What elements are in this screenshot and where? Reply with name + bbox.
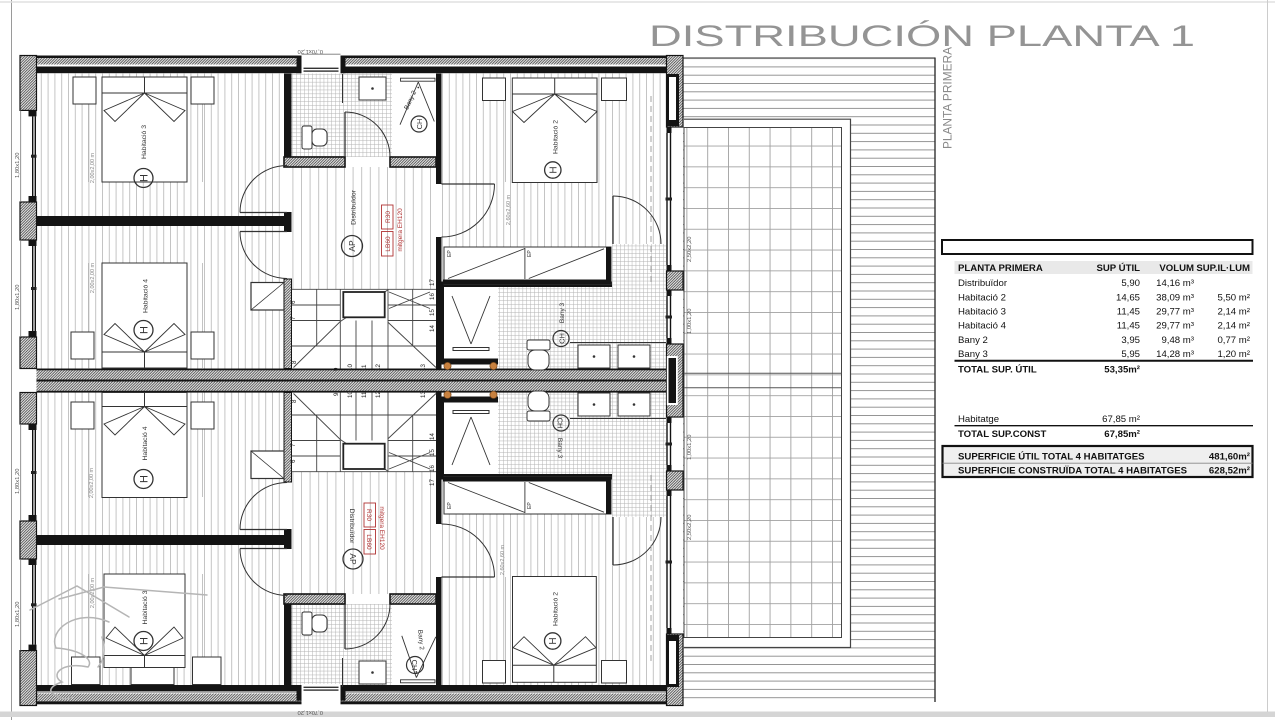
svg-text:2,50x2,20: 2,50x2,20 xyxy=(687,515,693,540)
svg-text:17: 17 xyxy=(429,279,436,286)
svg-text:0,70x1,20: 0,70x1,20 xyxy=(298,709,323,715)
svg-text:2,00x2,00 m: 2,00x2,00 m xyxy=(89,467,95,498)
svg-text:H: H xyxy=(548,166,559,173)
svg-text:SUPERFICIE ÚTIL TOTAL 4 HABITA: SUPERFICIE ÚTIL TOTAL 4 HABITATGES xyxy=(958,451,1145,463)
svg-text:H: H xyxy=(548,637,559,644)
svg-text:Habitació 3: Habitació 3 xyxy=(141,125,148,159)
svg-text:9: 9 xyxy=(333,367,340,371)
svg-text:1,20 m²: 1,20 m² xyxy=(1217,349,1250,360)
svg-text:PLANTA PRIMERA: PLANTA PRIMERA xyxy=(943,47,955,149)
svg-text:5,95: 5,95 xyxy=(1121,349,1140,360)
svg-text:SUP.IL·LUM: SUP.IL·LUM xyxy=(1196,263,1250,274)
svg-text:8: 8 xyxy=(291,360,298,364)
svg-text:13: 13 xyxy=(420,364,427,371)
svg-text:2,14 m²: 2,14 m² xyxy=(1217,321,1250,332)
svg-text:5,90: 5,90 xyxy=(1121,278,1140,289)
svg-text:1,80x1,20: 1,80x1,20 xyxy=(15,153,21,178)
svg-text:67,85m²: 67,85m² xyxy=(1104,429,1140,440)
svg-text:Bany 3: Bany 3 xyxy=(559,303,566,324)
svg-text:481,60m²: 481,60m² xyxy=(1209,452,1250,463)
svg-text:Habitació 4: Habitació 4 xyxy=(142,426,149,460)
svg-text:1,00x1,20: 1,00x1,20 xyxy=(687,435,693,460)
svg-text:TOTAL SUP. ÚTIL: TOTAL SUP. ÚTIL xyxy=(958,364,1037,376)
svg-text:Bany 3: Bany 3 xyxy=(556,438,563,459)
svg-text:H: H xyxy=(139,637,151,645)
svg-text:16: 16 xyxy=(429,465,436,472)
svg-text:2,50x2,20: 2,50x2,20 xyxy=(687,237,693,262)
svg-text:67,85 m²: 67,85 m² xyxy=(1102,414,1141,425)
svg-text:15: 15 xyxy=(429,309,436,316)
svg-text:3,95: 3,95 xyxy=(1121,335,1140,346)
svg-text:Habitació 2: Habitació 2 xyxy=(958,293,1006,304)
svg-text:14,28 m³: 14,28 m³ xyxy=(1156,349,1194,360)
svg-text:DISTRIBUCIÓN PLANTA 1: DISTRIBUCIÓN PLANTA 1 xyxy=(649,20,1195,53)
svg-text:2,60x2,60 m: 2,60x2,60 m xyxy=(506,194,512,225)
svg-text:H: H xyxy=(139,326,151,334)
svg-text:CH: CH xyxy=(410,660,419,671)
svg-text:628,52m²: 628,52m² xyxy=(1209,466,1250,477)
svg-text:R30: R30 xyxy=(385,211,392,223)
svg-text:SUPERFICIE CONSTRUÏDA TOTAL 4: SUPERFICIE CONSTRUÏDA TOTAL 4 HABITATGES xyxy=(958,466,1188,477)
svg-text:1,80x1,20: 1,80x1,20 xyxy=(15,469,21,494)
svg-text:Bany 2: Bany 2 xyxy=(958,335,988,346)
svg-text:LB60: LB60 xyxy=(385,236,392,252)
svg-text:13: 13 xyxy=(420,391,427,398)
svg-text:Habitació 3: Habitació 3 xyxy=(958,307,1006,318)
svg-text:14,16 m³: 14,16 m³ xyxy=(1156,278,1194,289)
svg-text:EP: EP xyxy=(447,250,453,257)
svg-text:11: 11 xyxy=(361,364,368,371)
svg-text:Habitatge: Habitatge xyxy=(958,414,999,425)
svg-text:1,00x1,20: 1,00x1,20 xyxy=(687,309,693,334)
svg-text:29,77 m³: 29,77 m³ xyxy=(1156,321,1194,332)
svg-text:Distribuïdor: Distribuïdor xyxy=(958,278,1008,289)
svg-text:2,00x2,00 m: 2,00x2,00 m xyxy=(90,577,96,608)
svg-text:8: 8 xyxy=(291,399,298,403)
svg-text:0,70x1,20: 0,70x1,20 xyxy=(298,48,323,54)
svg-text:2,00x2,00 m: 2,00x2,00 m xyxy=(90,262,96,293)
svg-text:6: 6 xyxy=(290,459,297,463)
svg-text:CH: CH xyxy=(556,418,565,429)
svg-text:38,09 m³: 38,09 m³ xyxy=(1156,293,1194,304)
svg-text:9: 9 xyxy=(333,392,340,396)
svg-text:CH: CH xyxy=(415,119,424,130)
svg-text:mitgera EH120: mitgera EH120 xyxy=(397,208,404,252)
svg-text:11,45: 11,45 xyxy=(1117,307,1140,318)
svg-text:1,80x1,20: 1,80x1,20 xyxy=(15,602,21,627)
svg-text:AP: AP xyxy=(348,553,358,565)
svg-text:2,00x2,00 m: 2,00x2,00 m xyxy=(90,152,96,183)
svg-text:17: 17 xyxy=(429,479,436,486)
svg-text:Habitació 4: Habitació 4 xyxy=(143,279,150,313)
svg-text:2,60x2,60 m: 2,60x2,60 m xyxy=(500,544,506,575)
svg-text:EP: EP xyxy=(447,502,453,509)
svg-text:12: 12 xyxy=(375,364,382,371)
svg-text:1,80x1,20: 1,80x1,20 xyxy=(15,285,21,310)
svg-text:AP: AP xyxy=(347,240,357,252)
svg-text:6: 6 xyxy=(290,300,297,304)
svg-text:0,77 m²: 0,77 m² xyxy=(1217,335,1250,346)
svg-text:29,77 m³: 29,77 m³ xyxy=(1156,307,1194,318)
svg-text:Habitació 2: Habitació 2 xyxy=(553,592,560,626)
svg-text:11,45: 11,45 xyxy=(1117,321,1140,332)
svg-text:Distribuïdor: Distribuïdor xyxy=(351,189,358,224)
svg-text:14: 14 xyxy=(429,325,436,332)
svg-text:11: 11 xyxy=(361,391,368,398)
svg-text:H: H xyxy=(139,174,151,182)
svg-text:PLANTA PRIMERA: PLANTA PRIMERA xyxy=(958,263,1043,274)
svg-text:VOLUM: VOLUM xyxy=(1159,263,1194,274)
svg-text:9,48 m³: 9,48 m³ xyxy=(1161,335,1194,346)
svg-text:15: 15 xyxy=(429,449,436,456)
svg-text:16: 16 xyxy=(429,293,436,300)
svg-text:Habitació 2: Habitació 2 xyxy=(553,120,560,154)
svg-text:EP: EP xyxy=(527,502,533,509)
svg-text:7: 7 xyxy=(290,316,297,320)
svg-text:10: 10 xyxy=(347,364,354,371)
svg-text:14: 14 xyxy=(429,433,436,440)
svg-text:Habitació 4: Habitació 4 xyxy=(958,321,1007,332)
svg-text:2,14 m²: 2,14 m² xyxy=(1217,307,1250,318)
svg-text:Habitació 3: Habitació 3 xyxy=(142,590,149,624)
svg-text:EP: EP xyxy=(527,250,533,257)
svg-text:5,50 m²: 5,50 m² xyxy=(1217,293,1250,304)
svg-text:7: 7 xyxy=(290,443,297,447)
svg-text:SUP ÚTIL: SUP ÚTIL xyxy=(1096,262,1140,274)
svg-text:53,35m²: 53,35m² xyxy=(1104,365,1140,376)
svg-text:14,65: 14,65 xyxy=(1116,293,1140,304)
svg-text:Distribuïdor: Distribuïdor xyxy=(348,509,355,544)
svg-text:10: 10 xyxy=(347,391,354,398)
svg-text:H: H xyxy=(139,475,151,483)
svg-text:mitgera EH120: mitgera EH120 xyxy=(378,506,385,550)
svg-text:12: 12 xyxy=(375,391,382,398)
svg-text:R30: R30 xyxy=(365,509,372,521)
svg-text:TOTAL SUP.CONST: TOTAL SUP.CONST xyxy=(958,429,1046,440)
svg-text:LB60: LB60 xyxy=(365,534,372,550)
svg-text:CH: CH xyxy=(558,333,567,344)
svg-text:Bany 3: Bany 3 xyxy=(958,349,988,360)
